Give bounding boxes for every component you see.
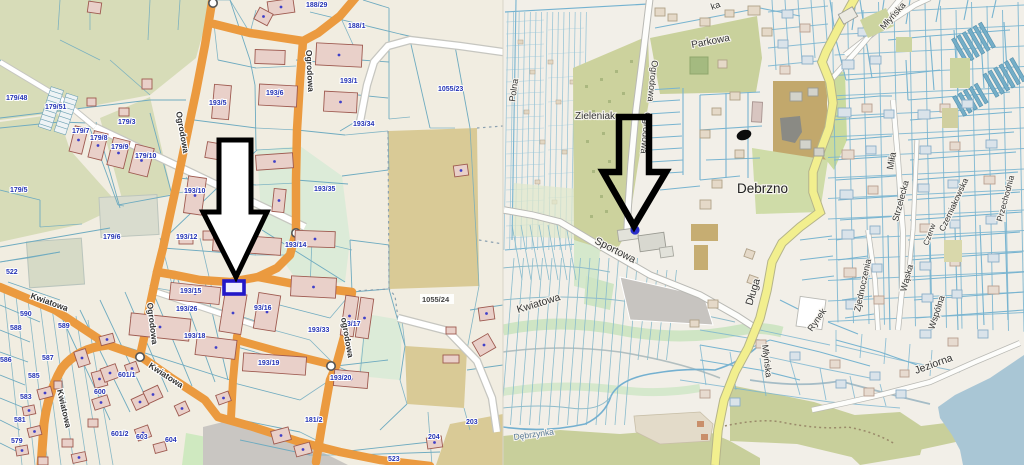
svg-text:589: 589	[58, 323, 70, 330]
svg-text:193/35: 193/35	[314, 186, 336, 193]
svg-text:1055/23: 1055/23	[438, 86, 463, 93]
svg-text:600: 600	[94, 389, 106, 396]
svg-text:Debrzno: Debrzno	[737, 181, 788, 196]
svg-text:203: 203	[466, 419, 478, 426]
svg-text:93/16: 93/16	[254, 305, 272, 312]
svg-text:193/6: 193/6	[266, 90, 284, 97]
svg-text:601/2: 601/2	[111, 431, 129, 438]
svg-text:204: 204	[428, 434, 440, 441]
svg-text:583: 583	[20, 394, 32, 401]
svg-text:193/14: 193/14	[285, 242, 307, 249]
svg-text:Zieleniak: Zieleniak	[575, 111, 616, 122]
svg-text:179/6: 179/6	[103, 234, 121, 241]
svg-text:193/26: 193/26	[176, 306, 198, 313]
svg-text:179/9: 179/9	[111, 144, 129, 151]
svg-text:193/33: 193/33	[308, 327, 330, 334]
svg-text:193/34: 193/34	[353, 121, 375, 128]
svg-text:588: 588	[10, 325, 22, 332]
svg-text:601/1: 601/1	[118, 372, 136, 379]
svg-text:179/3: 179/3	[118, 119, 136, 126]
svg-text:193/20: 193/20	[330, 375, 352, 382]
svg-text:193/18: 193/18	[184, 333, 206, 340]
svg-text:523: 523	[388, 456, 400, 463]
svg-text:193/10: 193/10	[184, 188, 206, 195]
svg-text:181/2: 181/2	[305, 417, 323, 424]
svg-text:590: 590	[20, 311, 32, 318]
svg-text:585: 585	[28, 373, 40, 380]
svg-text:604: 604	[165, 437, 177, 444]
svg-text:587: 587	[42, 355, 54, 362]
svg-text:188/1: 188/1	[348, 23, 366, 30]
svg-text:179/10: 179/10	[135, 153, 157, 160]
svg-text:579: 579	[11, 438, 23, 445]
svg-text:586: 586	[0, 357, 12, 364]
svg-text:179/51: 179/51	[45, 104, 67, 111]
svg-text:193/19: 193/19	[258, 360, 280, 367]
svg-text:179/7: 179/7	[72, 128, 90, 135]
svg-text:179/8: 179/8	[90, 135, 108, 142]
svg-text:193/15: 193/15	[180, 288, 202, 295]
svg-text:193/5: 193/5	[209, 100, 227, 107]
svg-text:1055/24: 1055/24	[422, 295, 450, 304]
svg-text:193/1: 193/1	[340, 78, 358, 85]
svg-text:581: 581	[14, 417, 26, 424]
svg-text:179/48: 179/48	[6, 95, 28, 102]
svg-text:179/5: 179/5	[10, 187, 28, 194]
svg-text:603: 603	[136, 434, 148, 441]
svg-text:522: 522	[6, 269, 18, 276]
svg-text:188/29: 188/29	[306, 2, 328, 9]
svg-text:193/12: 193/12	[176, 234, 198, 241]
